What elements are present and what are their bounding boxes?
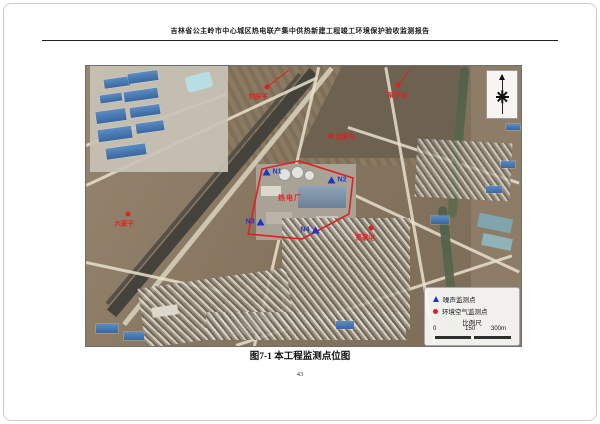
noise-monitoring-point: N3 xyxy=(246,219,265,226)
legend-air-row: 环境空气监测点 xyxy=(433,306,488,316)
scale-tick-0: 0 xyxy=(433,326,436,332)
air-point-label: 苇子沟 xyxy=(388,90,408,100)
noise-monitoring-point: N1 xyxy=(263,169,282,176)
air-circle-icon xyxy=(396,83,401,88)
air-monitoring-point: 刘房子 xyxy=(265,85,270,90)
legend-noise-row: 噪声监测点 xyxy=(433,294,476,304)
air-point-label: 刘房子 xyxy=(249,91,269,101)
legend-noise-label: 噪声监测点 xyxy=(443,294,476,304)
north-arrow-icon xyxy=(499,74,505,80)
scale-tick-300: 300m xyxy=(491,326,506,332)
air-monitoring-point: 六家子 xyxy=(126,212,131,217)
air-circle-icon xyxy=(329,134,334,139)
noise-triangle-icon xyxy=(328,177,336,184)
air-point-label: 六家子 xyxy=(115,218,135,228)
air-monitoring-point: 范家屯 xyxy=(369,226,374,231)
noise-triangle-icon xyxy=(433,296,439,302)
noise-monitoring-point: N2 xyxy=(328,177,347,184)
air-monitoring-point: 孟家屯 xyxy=(329,134,334,139)
air-circle-icon xyxy=(126,212,131,217)
header-rule xyxy=(42,40,558,41)
noise-triangle-icon xyxy=(263,169,271,176)
noise-triangle-icon xyxy=(256,219,264,226)
air-point-label: 孟家屯 xyxy=(336,131,356,141)
report-header: 吉林省公主岭市中心城区热电联产集中供热新建工程竣工环境保护验收监测报告 xyxy=(0,26,600,36)
air-circle-icon xyxy=(433,309,438,314)
air-monitoring-point: 苇子沟 xyxy=(396,83,401,88)
noise-point-label: N3 xyxy=(246,219,255,226)
map-legend: 噪声监测点 环境空气监测点 比例尺 0 150 300m xyxy=(424,287,520,346)
air-point-label: 范家屯 xyxy=(356,232,376,242)
noise-point-label: N4 xyxy=(301,227,310,234)
monitoring-map: 热电厂 N1N2N3N4刘房子苇子沟六家子孟家屯范家屯 噪声监测点 环境空气监测… xyxy=(85,65,522,347)
scale-tick-150: 150 xyxy=(465,326,475,332)
air-circle-icon xyxy=(369,226,374,231)
noise-point-label: N1 xyxy=(273,169,282,176)
noise-point-label: N2 xyxy=(338,177,347,184)
noise-monitoring-point: N4 xyxy=(301,227,320,234)
legend-air-label: 环境空气监测点 xyxy=(442,306,488,316)
page-number: 43 xyxy=(0,371,600,378)
air-circle-icon xyxy=(265,85,270,90)
noise-triangle-icon xyxy=(311,227,319,234)
scale-bar xyxy=(435,336,511,339)
figure-caption: 图7-1 本工程监测点位图 xyxy=(0,348,600,362)
compass-box xyxy=(486,70,518,119)
